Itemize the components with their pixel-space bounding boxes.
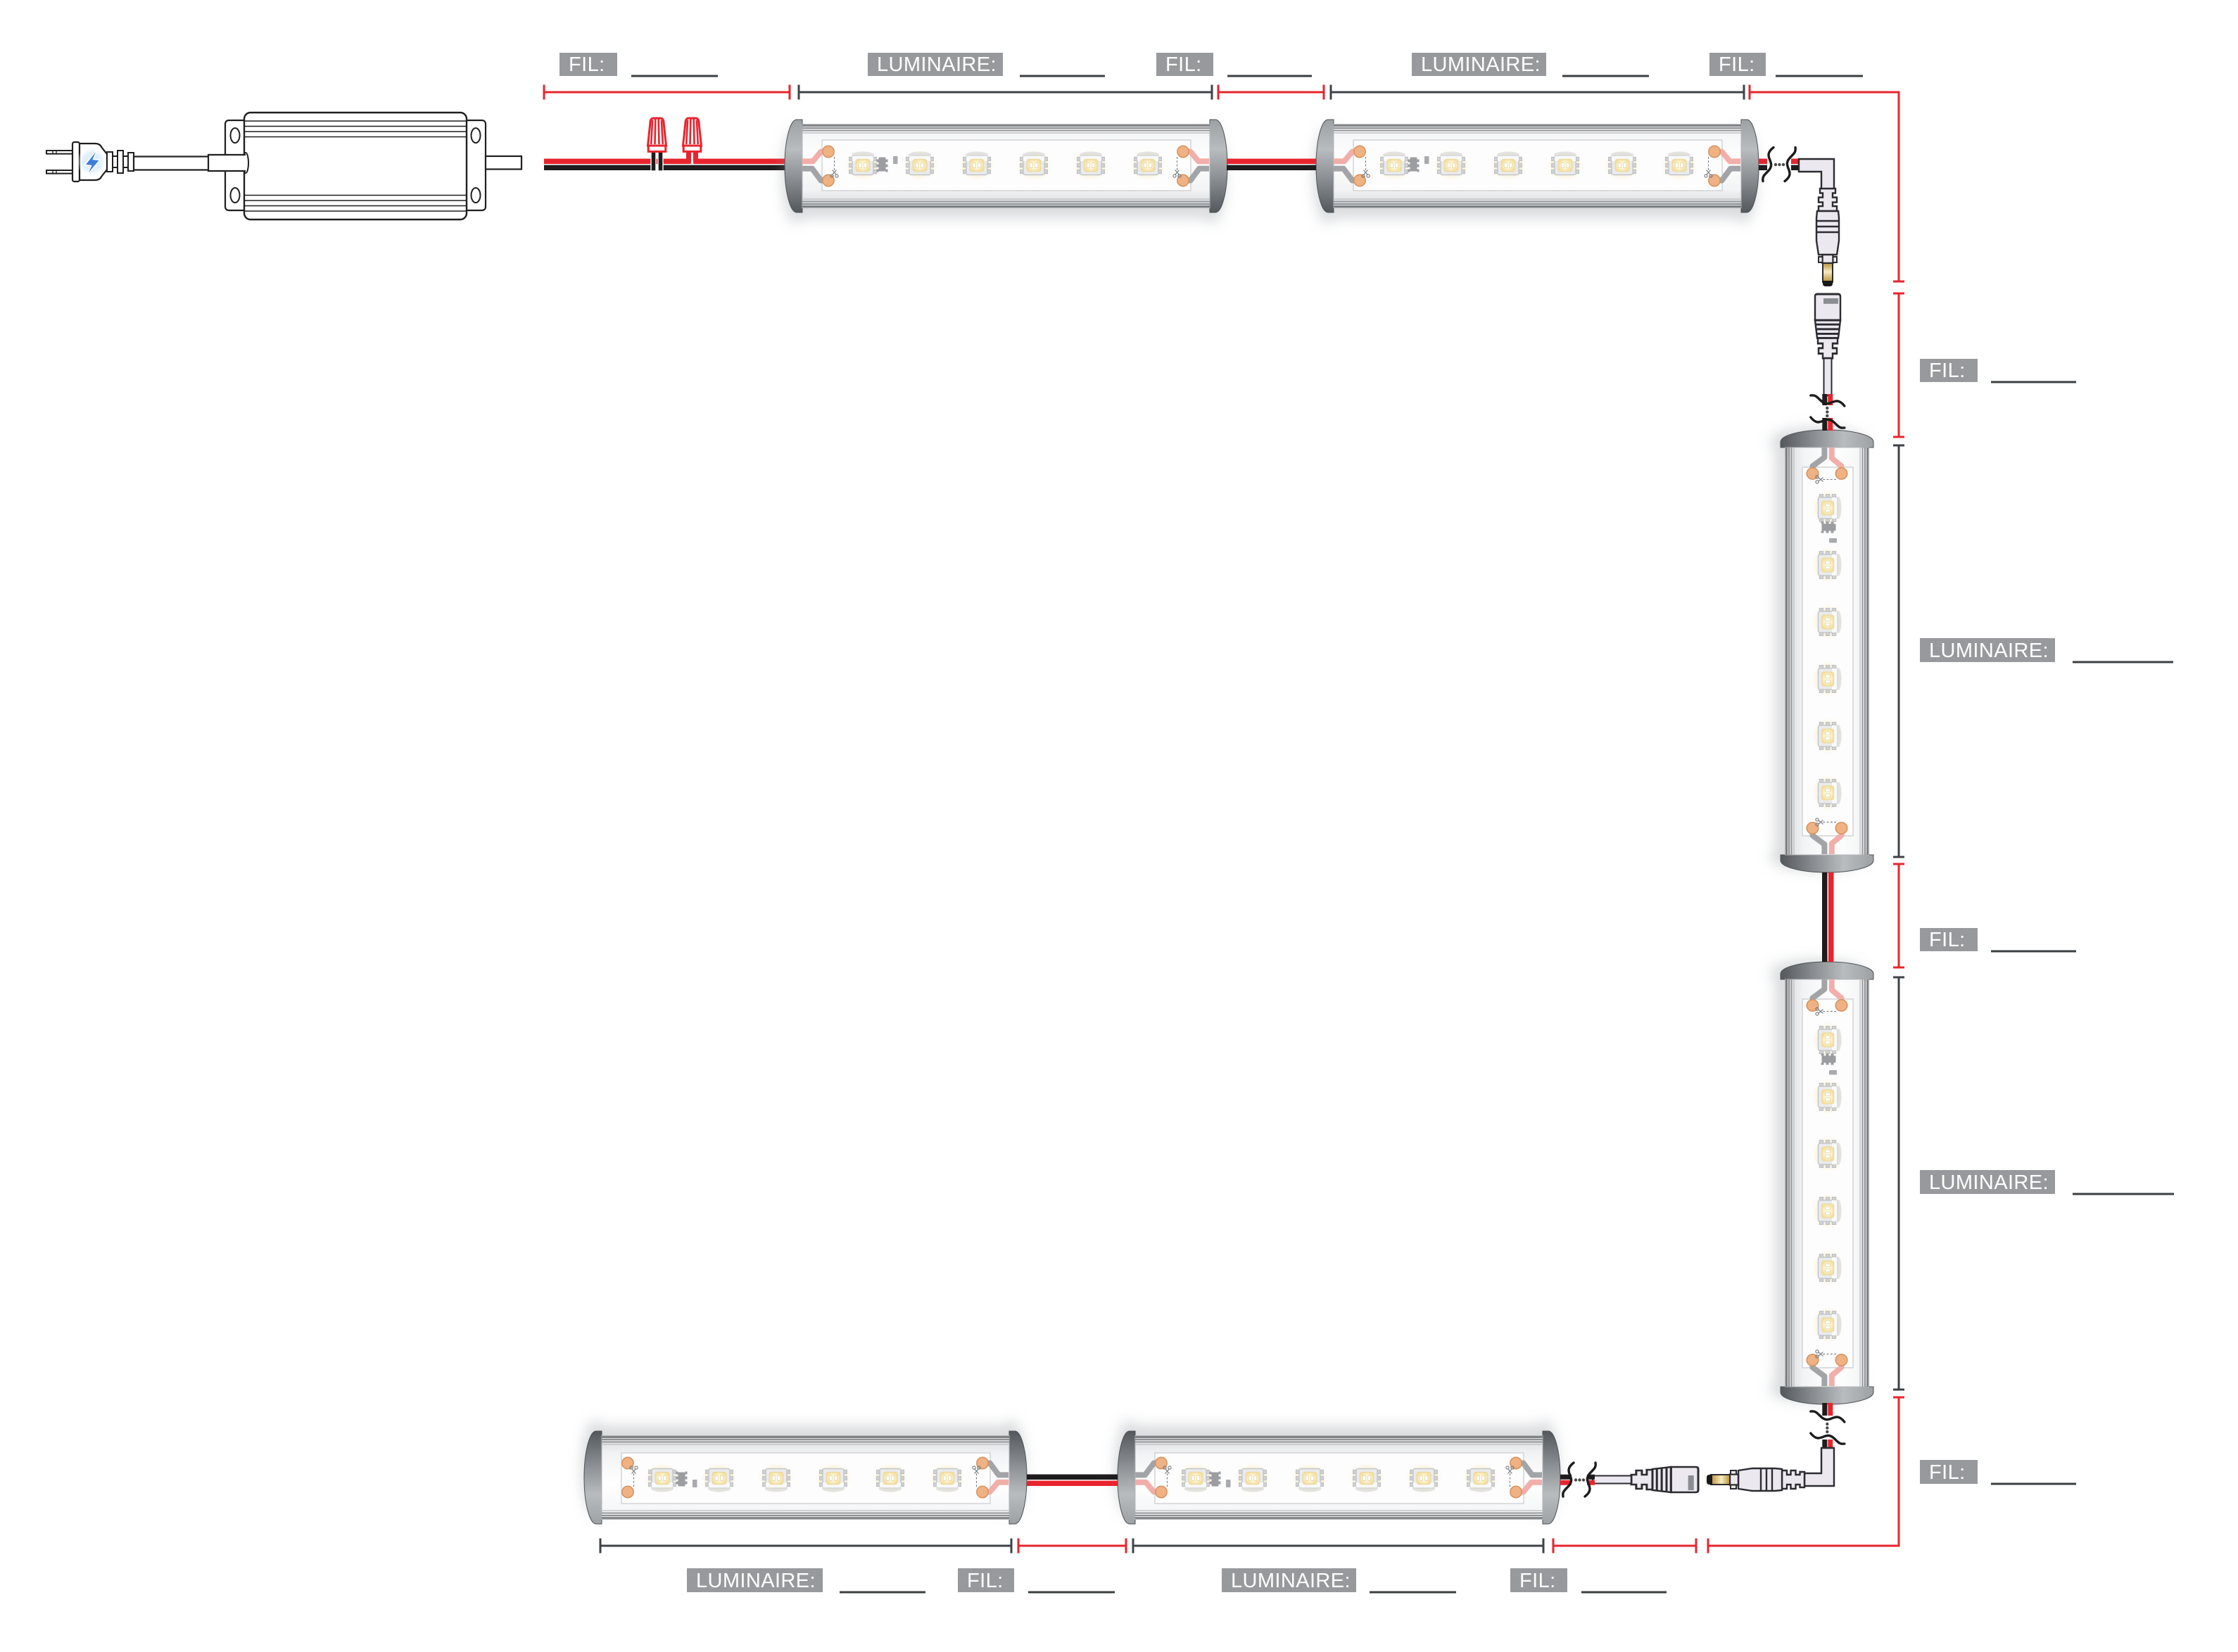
svg-text:FIL:: FIL: [1929,1461,1966,1484]
svg-text:FIL:: FIL: [967,1570,1004,1592]
svg-text:FIL:: FIL: [1929,360,1966,382]
svg-text:LUMINAIRE:: LUMINAIRE: [1929,640,2049,662]
svg-text:FIL:: FIL: [569,53,605,76]
svg-text:LUMINAIRE:: LUMINAIRE: [1231,1570,1351,1592]
svg-text:LUMINAIRE:: LUMINAIRE: [1929,1171,2049,1194]
svg-text:LUMINAIRE:: LUMINAIRE: [696,1570,816,1592]
svg-text:LUMINAIRE:: LUMINAIRE: [1421,53,1541,76]
svg-text:LUMINAIRE:: LUMINAIRE: [877,53,997,76]
svg-text:FIL:: FIL: [1929,929,1966,951]
svg-text:FIL:: FIL: [1719,53,1755,76]
svg-text:FIL:: FIL: [1519,1570,1556,1592]
svg-text:FIL:: FIL: [1165,53,1202,76]
